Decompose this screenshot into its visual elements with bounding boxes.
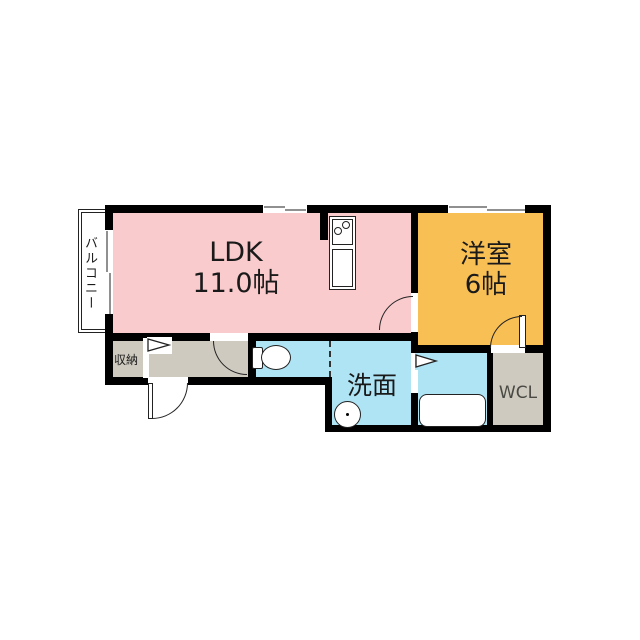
balcony-label: バルコニー xyxy=(82,216,99,330)
wall-kitchen-stub xyxy=(320,205,328,240)
storage-folding-door-icon xyxy=(147,337,172,354)
wall-bedroom-bottom xyxy=(411,345,551,353)
balcony-door-pane-1 xyxy=(106,231,108,272)
balcony-door-pane-2 xyxy=(109,273,111,314)
wall-right xyxy=(543,205,551,432)
bathroom-folding-door-icon xyxy=(415,353,439,370)
stove-burner-icon xyxy=(334,227,342,235)
ldk-size: 11.0帖 xyxy=(146,268,326,299)
ldk-label: LDK 11.0帖 xyxy=(146,237,326,299)
kitchen-sink xyxy=(332,249,353,287)
hallway-door-opening xyxy=(210,333,248,341)
bedroom-name: 洋室 xyxy=(426,241,546,271)
entrance-door-swing-arc xyxy=(152,383,188,419)
bedroom-size: 6帖 xyxy=(426,271,546,301)
wall-washroom-left xyxy=(325,377,332,432)
wcl-label: WCL xyxy=(493,383,543,403)
washroom-label: 洗面 xyxy=(334,366,410,402)
bedroom-top-window-pane-1 xyxy=(449,206,487,208)
toilet-bowl xyxy=(261,345,291,370)
bathtub xyxy=(419,394,486,427)
storage-label: 収納 xyxy=(107,351,145,368)
ldk-name: LDK xyxy=(146,237,326,268)
ldk-top-window-pane-1 xyxy=(264,206,285,208)
stove-burner-icon xyxy=(342,221,350,229)
ldk-top-window-pane-2 xyxy=(285,209,306,211)
wall-bottom-left xyxy=(105,377,332,385)
toilet-partition-dashed-line xyxy=(329,341,331,377)
floor-plan: バルコニー LDK 11.0帖 洋室 6帖 収納 洗面 WCL xyxy=(0,0,640,640)
bedroom-label: 洋室 6帖 xyxy=(426,241,546,301)
washbasin-drain-dot xyxy=(346,413,349,416)
bedroom-top-window-pane-2 xyxy=(487,209,525,211)
